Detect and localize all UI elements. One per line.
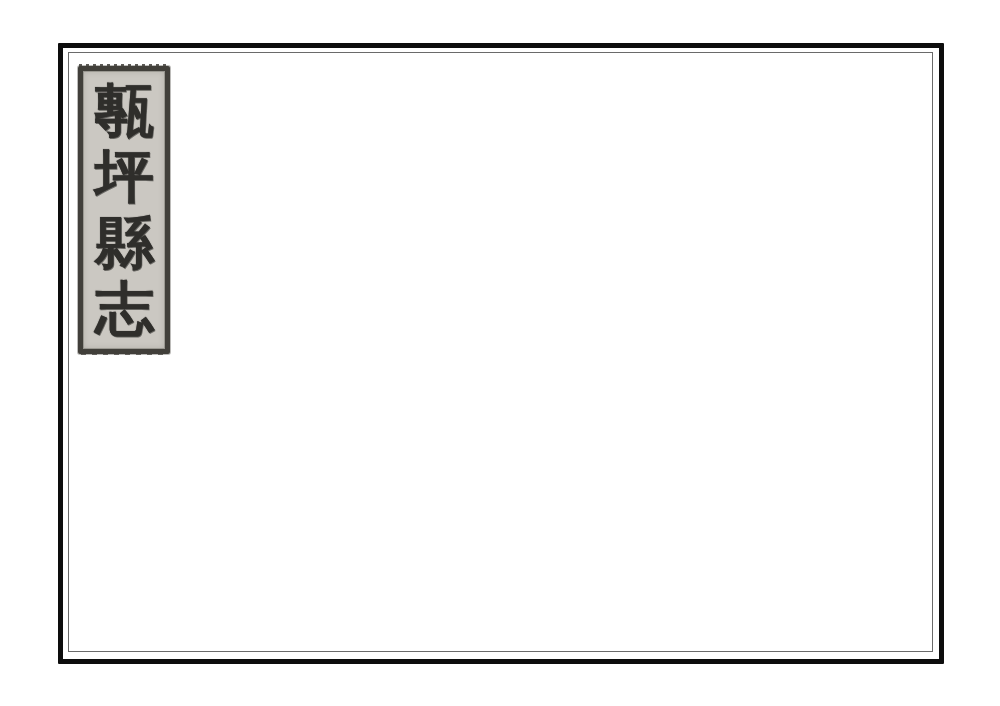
scanned-book-page: 甎 坪 縣 志 (0, 0, 1000, 706)
title-char-3: 縣 (94, 213, 153, 273)
title-char-2: 坪 (94, 147, 153, 207)
title-char-1: 甎 (94, 81, 153, 141)
title-slip: 甎 坪 縣 志 (78, 66, 170, 354)
title-char-4: 志 (94, 279, 153, 339)
page-inner-rule (68, 52, 933, 652)
